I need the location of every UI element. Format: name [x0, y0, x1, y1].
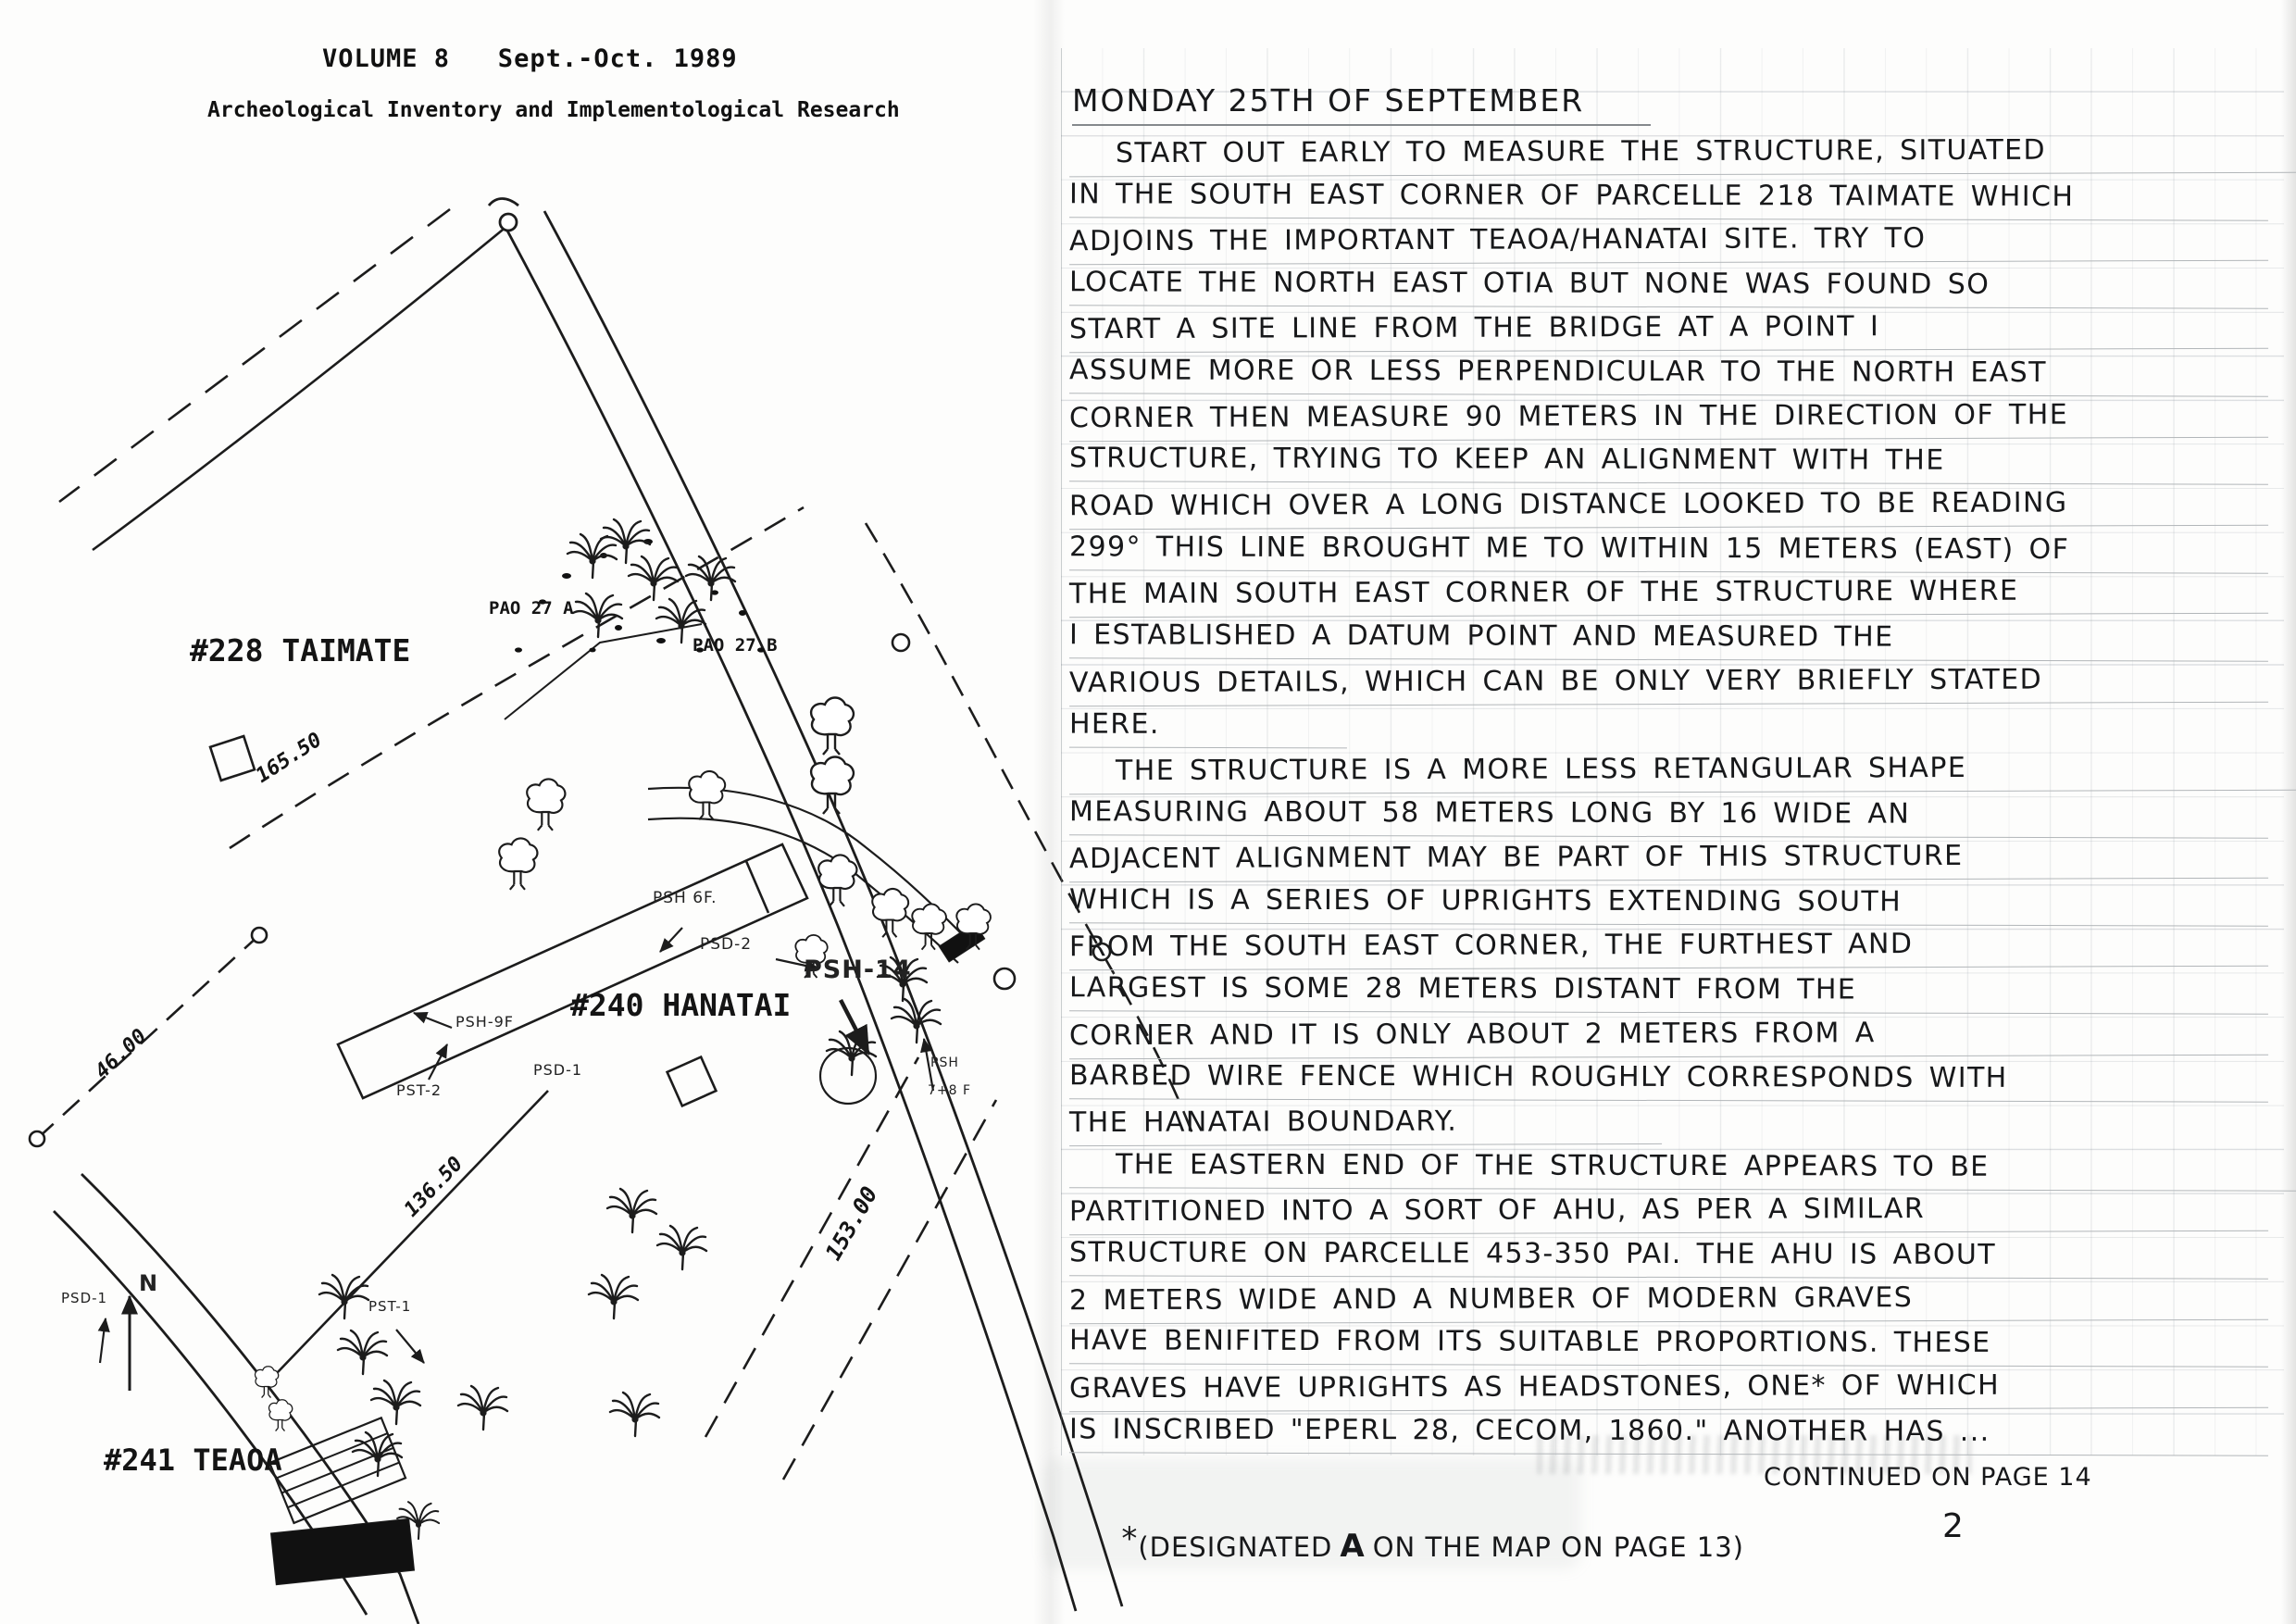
- note-line: THE HANATAI BOUNDARY.: [1069, 1099, 1662, 1146]
- note-line: 2 METERS WIDE AND A NUMBER OF MODERN GRA…: [1069, 1275, 2268, 1325]
- note-line: STRUCTURE, TRYING TO KEEP AN ALIGNMENT W…: [1069, 436, 2268, 484]
- note-line: GRAVES HAVE UPRIGHTS AS HEADSTONES, ONE*…: [1069, 1363, 2268, 1413]
- note-line: FROM THE SOUTH EAST CORNER, THE FURTHEST…: [1069, 921, 2268, 971]
- note-line: HAVE BENIFITED FROM ITS SUITABLE PROPORT…: [1069, 1318, 2268, 1367]
- footnote: *(DESIGNATEDAON THE MAP ON PAGE 13): [1065, 1489, 1744, 1596]
- note-line: I ESTABLISHED A DATUM POINT AND MEASURED…: [1069, 613, 2268, 661]
- note-line: ASSUME MORE OR LESS PERPENDICULAR TO THE…: [1069, 348, 2268, 396]
- note-line: BARBED WIRE FENCE WHICH ROUGHLY CORRESPO…: [1069, 1054, 2268, 1102]
- page-number: 2: [1942, 1507, 1964, 1545]
- note-line: 299° THIS LINE BROUGHT ME TO WITHIN 15 M…: [1069, 525, 2268, 573]
- note-line: ADJACENT ALIGNMENT MAY BE PART OF THIS S…: [1069, 833, 2268, 883]
- note-line: HERE.: [1069, 703, 1347, 749]
- handwritten-notes: MONDAY 25TH OF SEPTEMBER START OUT EARLY…: [0, 0, 2296, 1624]
- note-line: PARTITIONED INTO A SORT OF AHU, AS PER A…: [1069, 1186, 2268, 1236]
- note-line: CORNER AND IT IS ONLY ABOUT 2 METERS FRO…: [1069, 1010, 2268, 1060]
- note-line: START A SITE LINE FROM THE BRIDGE AT A P…: [1069, 304, 2268, 354]
- note-line: CORNER THEN MEASURE 90 METERS IN THE DIR…: [1069, 393, 2268, 443]
- footnote-letter-a: A: [1340, 1528, 1365, 1565]
- note-line: LOCATE THE NORTH EAST OTIA BUT NONE WAS …: [1069, 260, 2268, 308]
- continued-note: CONTINUED ON PAGE 14: [1764, 1463, 2092, 1492]
- note-line: LARGEST IS SOME 28 METERS DISTANT FROM T…: [1069, 966, 2268, 1014]
- scanned-notebook-page: VOLUME 8 Sept.-Oct. 1989 Archeological I…: [0, 0, 2296, 1624]
- note-line: IN THE SOUTH EAST CORNER OF PARCELLE 218…: [1069, 172, 2268, 220]
- note-line: THE MAIN SOUTH EAST CORNER OF THE STRUCT…: [1069, 568, 2268, 618]
- date-heading: MONDAY 25TH OF SEPTEMBER: [1072, 78, 1651, 126]
- note-line: ADJOINS THE IMPORTANT TEAOA/HANATAI SITE…: [1069, 216, 2268, 266]
- footnote-asterisk: *: [1121, 1520, 1138, 1557]
- footnote-text-close: ON THE MAP ON PAGE 13): [1373, 1531, 1744, 1563]
- note-line: IS INSCRIBED "EPERL 28, CECOM, 1860." AN…: [1069, 1407, 2268, 1455]
- note-line: START OUT EARLY TO MEASURE THE STRUCTURE…: [1069, 128, 2296, 178]
- note-line: ROAD WHICH OVER A LONG DISTANCE LOOKED T…: [1069, 481, 2268, 531]
- note-line: MEASURING ABOUT 58 METERS LONG BY 16 WID…: [1069, 790, 2268, 838]
- note-line: WHICH IS A SERIES OF UPRIGHTS EXTENDING …: [1069, 878, 2268, 926]
- note-line: THE STRUCTURE IS A MORE LESS RETANGULAR …: [1069, 745, 2296, 795]
- note-line: VARIOUS DETAILS, WHICH CAN BE ONLY VERY …: [1069, 657, 2268, 707]
- footnote-text-open: (DESIGNATED: [1138, 1531, 1332, 1563]
- note-line: THE EASTERN END OF THE STRUCTURE APPEARS…: [1069, 1143, 2296, 1192]
- note-line: STRUCTURE ON PARCELLE 453-350 PAI. THE A…: [1069, 1230, 2268, 1279]
